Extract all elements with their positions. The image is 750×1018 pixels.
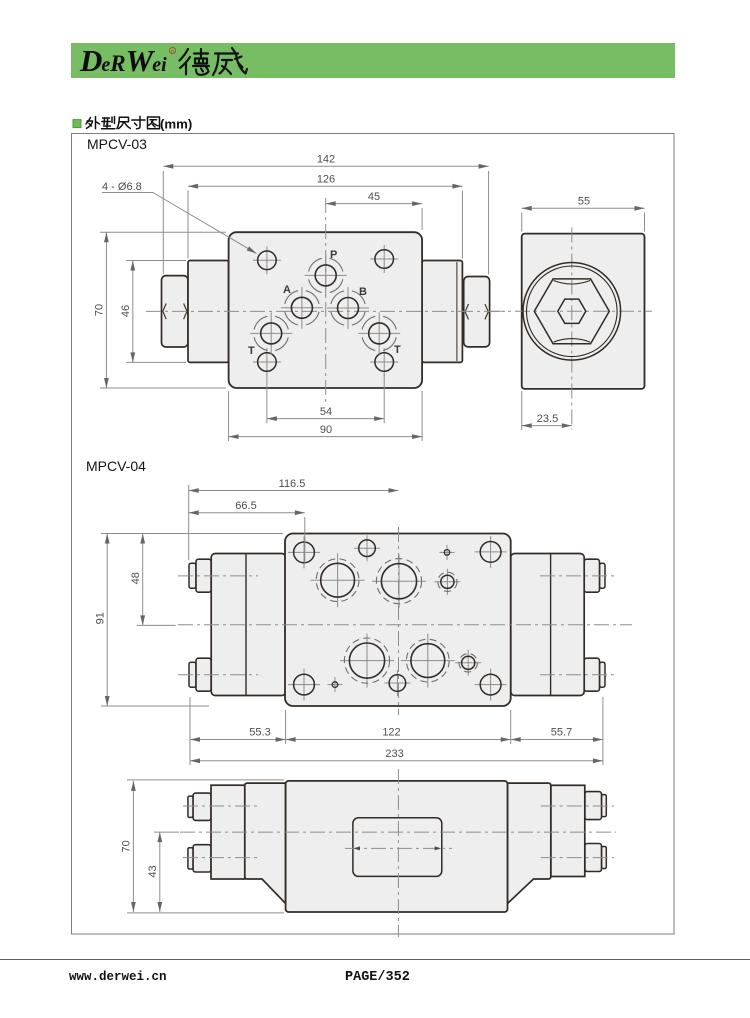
svg-text:4 - Ø6.8: 4 - Ø6.8 — [102, 181, 142, 193]
svg-text:91: 91 — [94, 612, 106, 624]
svg-text:48: 48 — [130, 572, 142, 584]
svg-text:46: 46 — [120, 305, 132, 317]
svg-text:23.5: 23.5 — [537, 413, 558, 425]
svg-text:70: 70 — [120, 840, 132, 852]
svg-text:70: 70 — [94, 304, 106, 316]
svg-text:66.5: 66.5 — [235, 500, 256, 512]
svg-text:B: B — [359, 286, 367, 298]
svg-text:P: P — [330, 249, 337, 261]
svg-text:126: 126 — [317, 174, 335, 186]
svg-text:A: A — [283, 284, 291, 296]
svg-text:MPCV-04: MPCV-04 — [86, 458, 146, 474]
svg-text:142: 142 — [317, 154, 335, 166]
svg-text:www.derwei.cn: www.derwei.cn — [69, 970, 167, 984]
svg-text:MPCV-03: MPCV-03 — [87, 136, 147, 152]
svg-text:55.3: 55.3 — [249, 727, 270, 739]
svg-text:43: 43 — [147, 865, 159, 877]
svg-text:90: 90 — [320, 424, 332, 436]
svg-text:55.7: 55.7 — [551, 727, 572, 739]
svg-text:55: 55 — [578, 196, 590, 208]
svg-text:116.5: 116.5 — [279, 478, 306, 490]
svg-text:233: 233 — [385, 748, 403, 760]
svg-text:T: T — [248, 345, 255, 357]
svg-text:45: 45 — [368, 191, 380, 203]
svg-text:PAGE/352: PAGE/352 — [345, 970, 410, 985]
svg-text:(mm): (mm) — [160, 116, 192, 131]
svg-text:122: 122 — [382, 727, 400, 739]
svg-text:T: T — [394, 344, 401, 356]
svg-text:54: 54 — [320, 406, 332, 418]
